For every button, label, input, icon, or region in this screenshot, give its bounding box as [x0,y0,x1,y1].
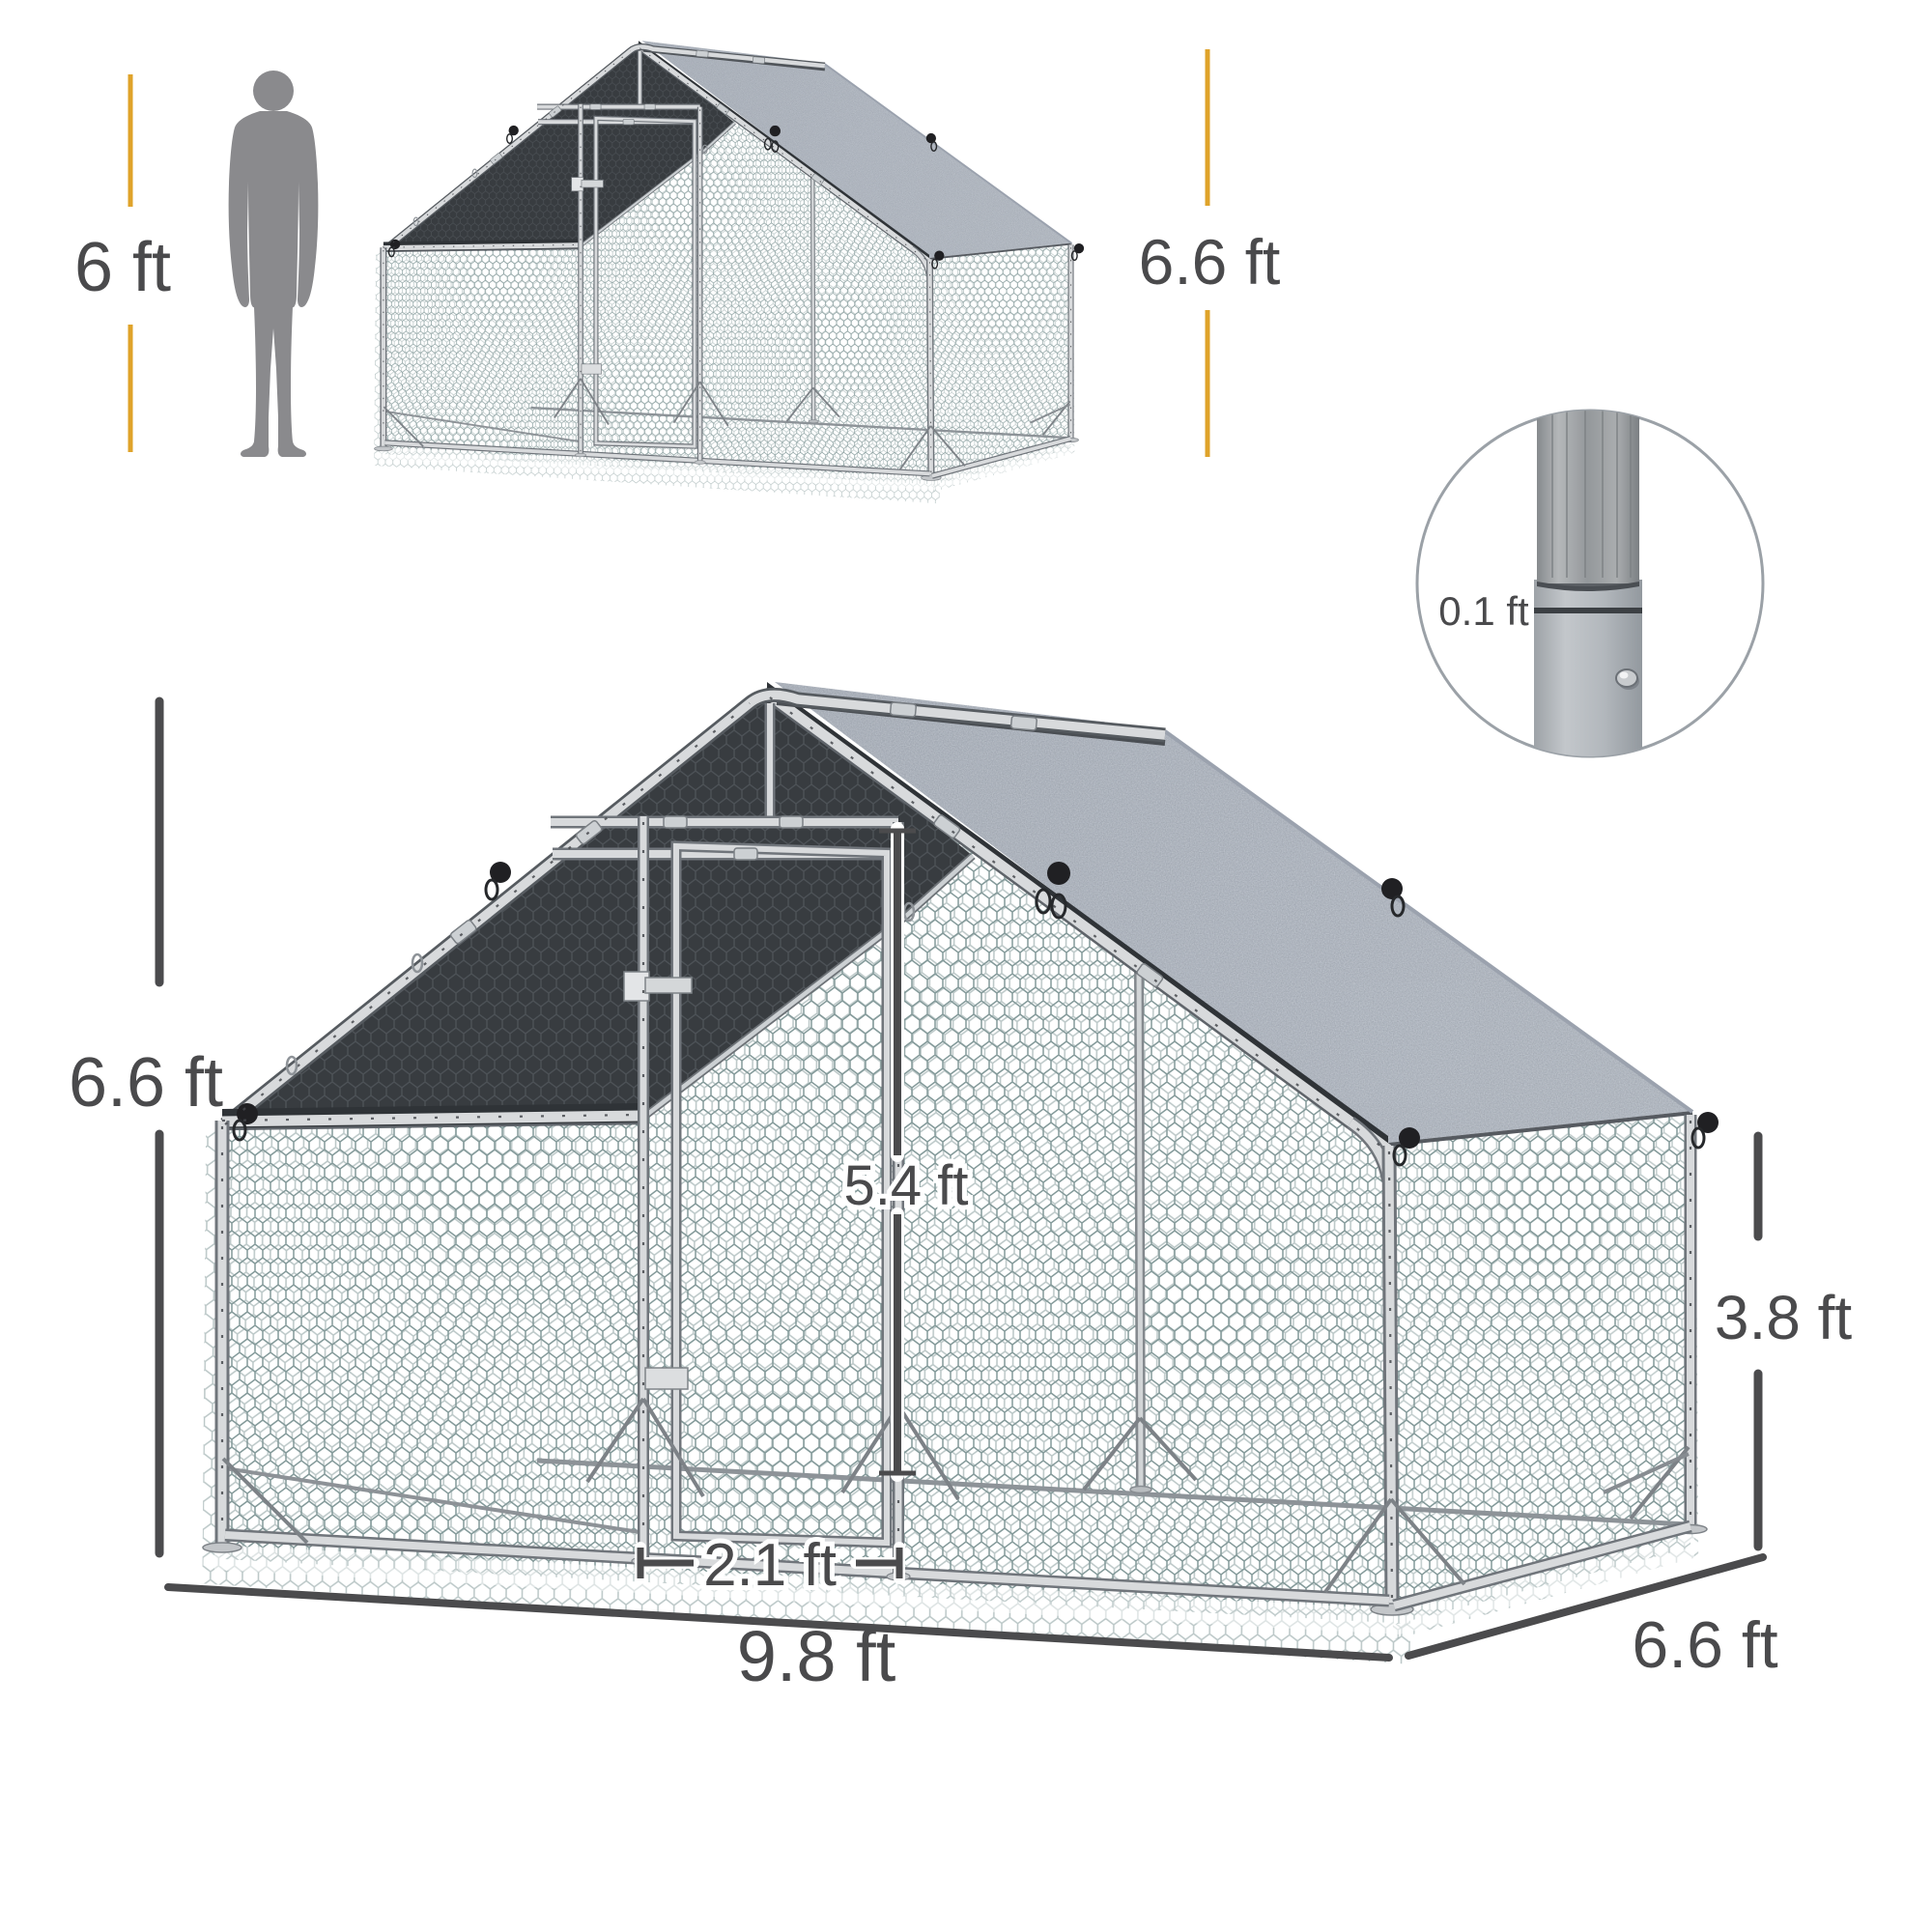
svg-text:0.1 ft: 0.1 ft [1438,588,1529,634]
svg-text:3.8 ft: 3.8 ft [1715,1283,1853,1352]
svg-text:6.6 ft: 6.6 ft [69,1044,223,1122]
svg-text:9.8 ft: 9.8 ft [737,1616,896,1696]
svg-text:5.4 ft: 5.4 ft [844,1154,969,1217]
svg-text:6.6 ft: 6.6 ft [1632,1608,1777,1682]
svg-text:6.6 ft: 6.6 ft [1139,226,1281,298]
svg-text:6 ft: 6 ft [74,229,171,306]
svg-text:2.1 ft: 2.1 ft [703,1532,837,1599]
